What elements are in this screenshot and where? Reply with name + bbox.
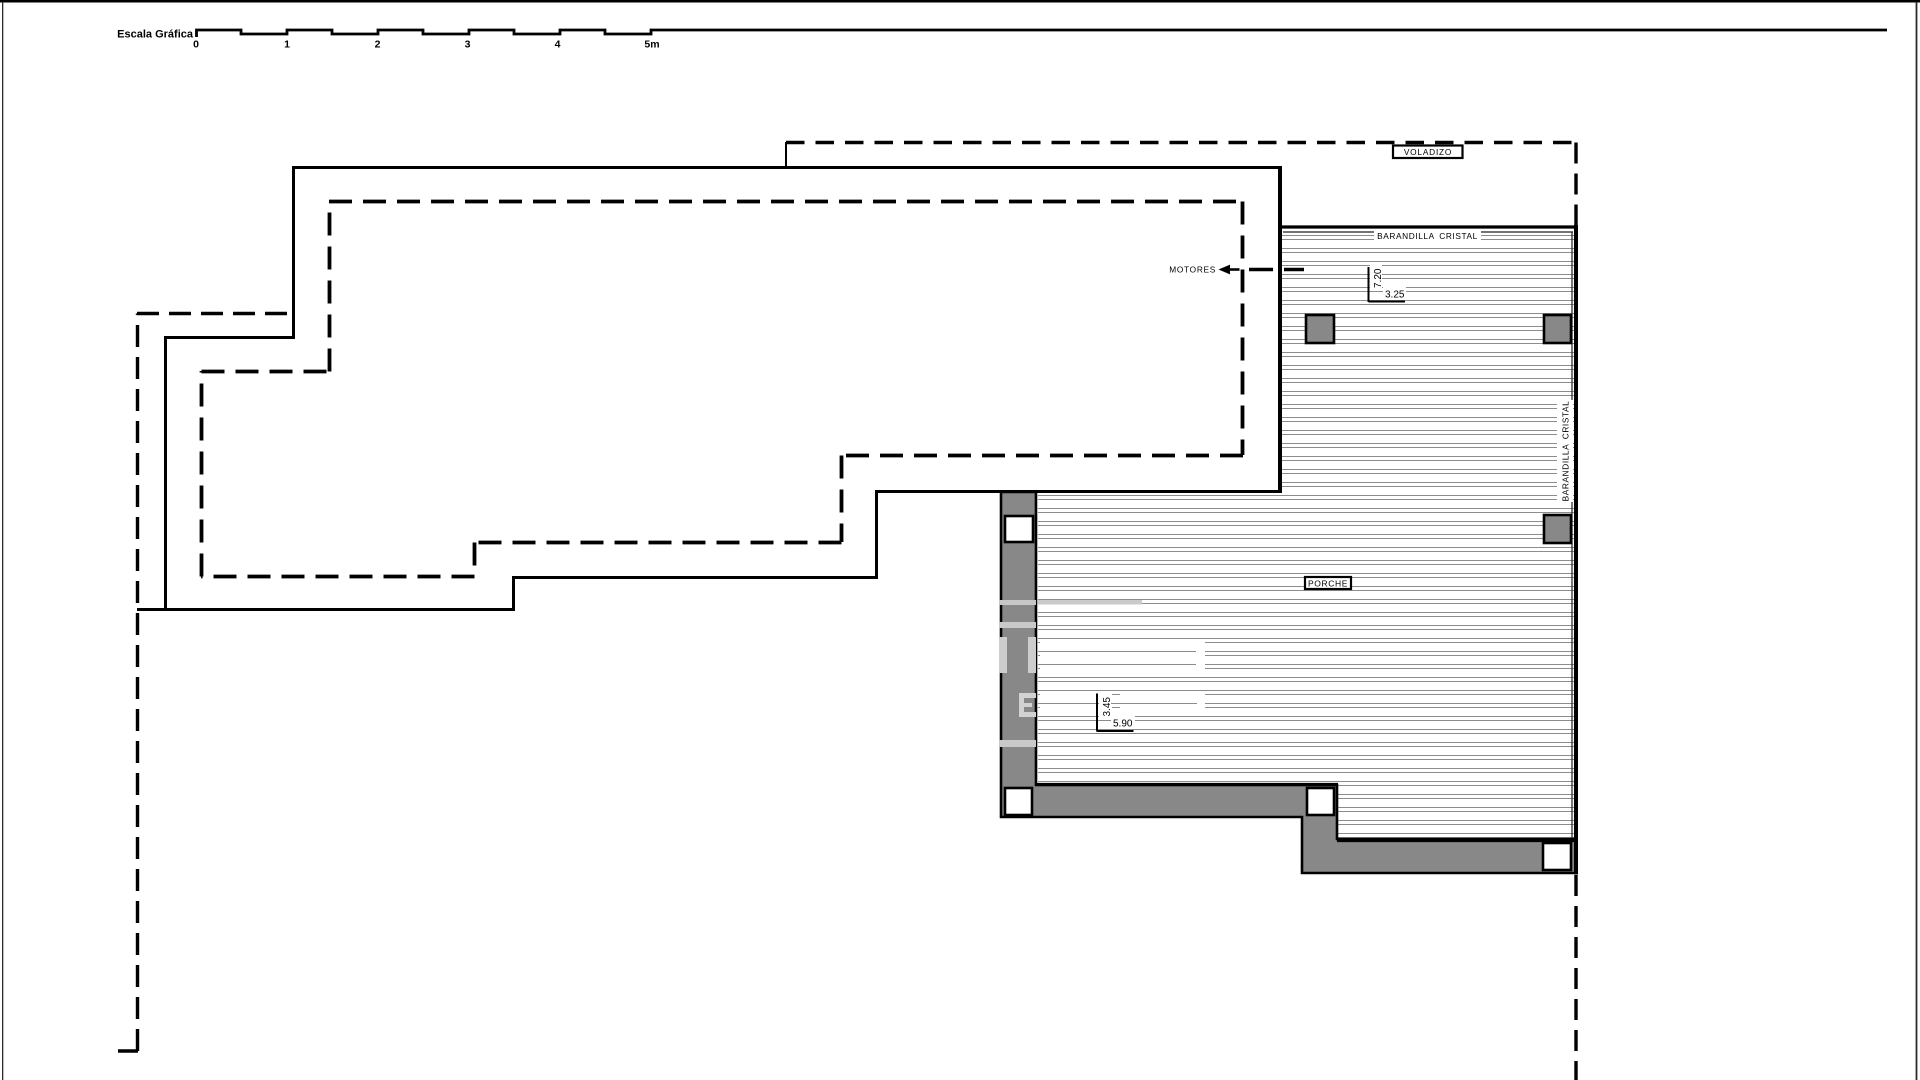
svg-text:3.25: 3.25 [1385,290,1405,301]
svg-text:7.20: 7.20 [1373,268,1384,288]
svg-text:2: 2 [375,39,381,51]
svg-text:BARANDILLA CRISTAL: BARANDILLA CRISTAL [1561,401,1571,502]
svg-text:VOLADIZO: VOLADIZO [1404,147,1452,157]
svg-text:PORCHE: PORCHE [1308,578,1348,588]
svg-text:3.45: 3.45 [1102,697,1113,717]
svg-text:Escala Gráfica: Escala Gráfica [117,29,194,41]
svg-text:MOTORES: MOTORES [1169,265,1216,275]
svg-text:3: 3 [465,39,471,51]
svg-text:0: 0 [193,39,199,51]
svg-text:BARANDILLA CRISTAL: BARANDILLA CRISTAL [1377,231,1478,241]
svg-text:5m: 5m [644,39,659,51]
svg-text:4: 4 [555,39,561,51]
svg-text:1: 1 [284,39,290,51]
svg-text:5.90: 5.90 [1113,719,1133,730]
